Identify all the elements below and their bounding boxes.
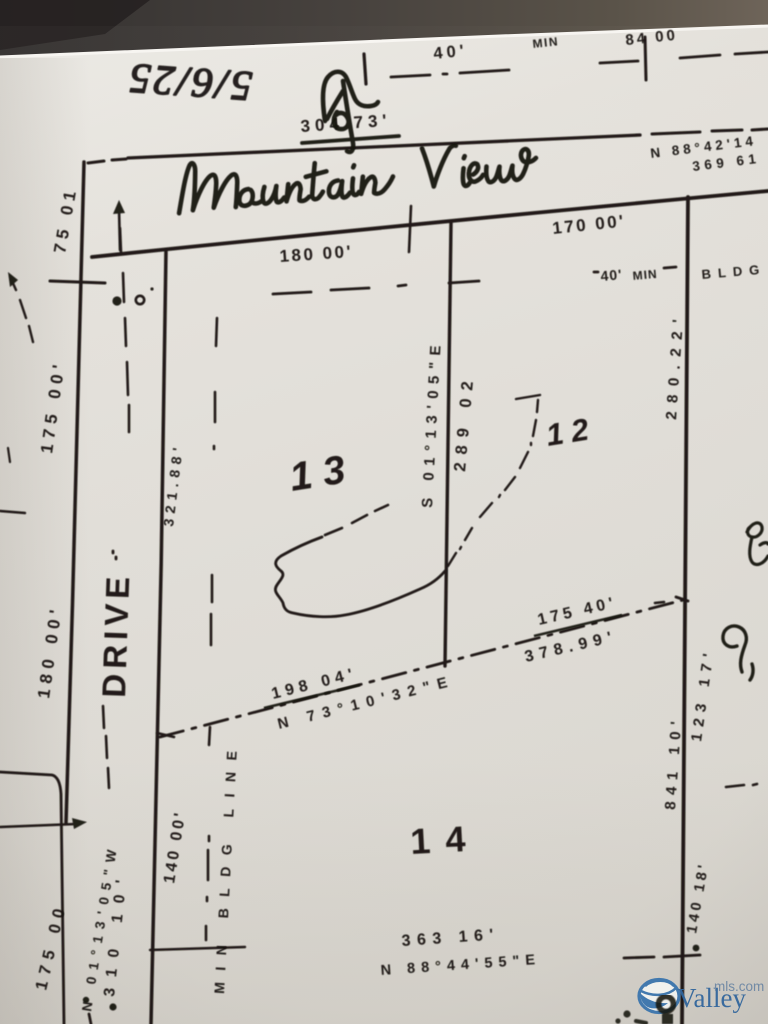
svg-text:40': 40' (600, 266, 623, 284)
svg-text:5/6/25: 5/6/25 (125, 54, 253, 109)
svg-text:DRIVE: DRIVE (95, 571, 136, 698)
svg-text:40': 40' (433, 41, 469, 62)
svg-text:14: 14 (409, 817, 481, 862)
svg-text:MIN: MIN (532, 34, 560, 51)
svg-text:MIN: MIN (632, 267, 658, 283)
svg-text:mls.com: mls.com (714, 979, 764, 994)
